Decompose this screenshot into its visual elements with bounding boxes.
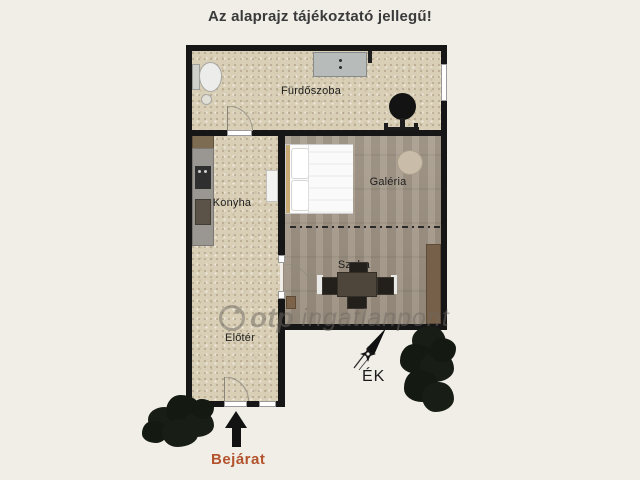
room-label-gallery: Galéria — [370, 176, 407, 188]
room-label-kitchen: Konyha — [213, 197, 252, 209]
room-door-jamb-top — [278, 255, 285, 263]
bathroom-window — [441, 64, 447, 101]
wall-hall-bottom-right — [276, 401, 285, 407]
pillow-icon — [291, 148, 309, 179]
room-door-arc — [285, 264, 312, 292]
chair-icon — [377, 277, 394, 295]
floor-plan-stage: Az alaprajz tájékoztató jellegű! — [0, 0, 640, 480]
entrance-door-arc — [224, 377, 249, 402]
dining-table-icon — [337, 272, 377, 297]
faucet-icon — [368, 51, 372, 63]
tree-icon — [140, 393, 218, 453]
pillow-icon — [291, 180, 309, 211]
wall-left — [186, 45, 192, 407]
watermark-brand: otp — [250, 302, 294, 334]
washing-machine-icon — [389, 93, 416, 120]
bathroom-door-arc — [227, 106, 253, 132]
entrance-arrow-shaft — [232, 427, 241, 447]
room-door-jamb-bottom — [278, 291, 285, 299]
entrance-arrow-icon — [225, 411, 247, 428]
gallery-boundary-dashed-line — [290, 226, 442, 228]
wall-bathroom-bottom-left — [186, 130, 227, 136]
watermark-logo-icon — [219, 305, 245, 331]
kitchen-counter — [192, 148, 214, 246]
double-bed-icon — [285, 144, 353, 214]
floor-drain-icon — [201, 94, 212, 105]
tree-icon — [394, 326, 458, 414]
kitchen-counter-top — [192, 135, 214, 149]
compass-label: ÉK — [362, 368, 385, 386]
pouf-icon — [397, 150, 423, 175]
hall-window — [259, 401, 276, 407]
wall-top — [186, 45, 447, 51]
wall-hall-right — [278, 330, 285, 407]
wall-middle-upper — [278, 130, 285, 255]
page-title: Az alaprajz tájékoztató jellegű! — [0, 8, 640, 25]
radiator-icon — [266, 170, 278, 202]
room-label-bathroom: Fürdőszoba — [281, 85, 341, 97]
bathroom-sink-icon — [313, 52, 367, 77]
entrance-label: Bejárat — [211, 451, 265, 468]
